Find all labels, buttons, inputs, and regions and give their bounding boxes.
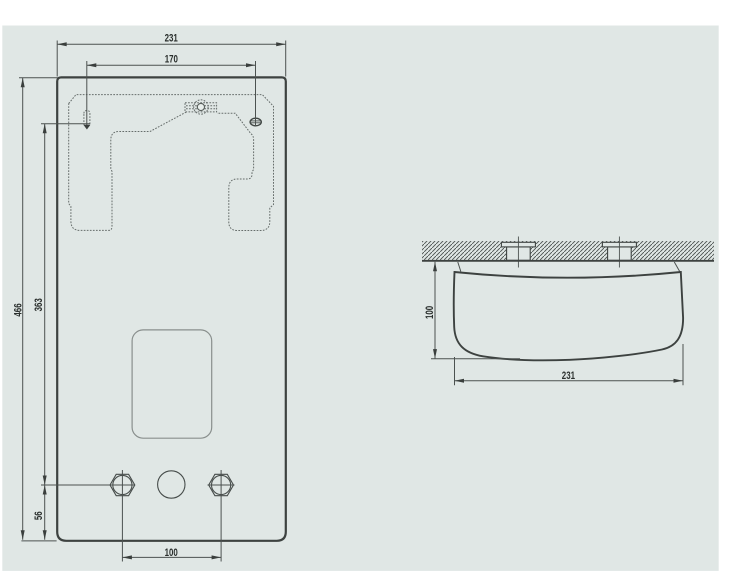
svg-text:466: 466 [12,303,25,317]
svg-text:100: 100 [165,547,179,560]
svg-text:170: 170 [165,53,179,66]
svg-text:231: 231 [165,32,179,45]
svg-text:363: 363 [33,298,46,312]
svg-text:100: 100 [424,305,437,319]
svg-text:231: 231 [562,370,576,383]
svg-text:56: 56 [33,511,46,520]
